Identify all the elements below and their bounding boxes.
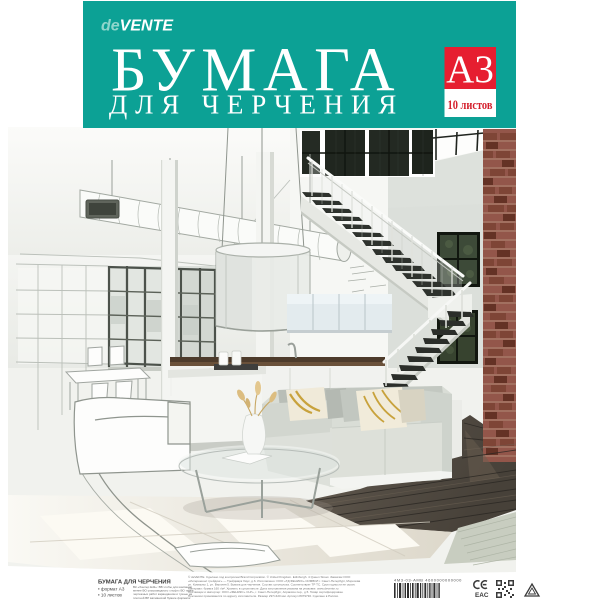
svg-text:• формат А3: • формат А3: [98, 587, 125, 592]
svg-text:плотной ВР ватманской бумаге ф: плотной ВР ватманской бумаге формата.: [133, 596, 191, 600]
svg-text:EAC: EAC: [475, 592, 489, 599]
svg-text:ДЛЯ ЧЕРЧЕНИЯ: ДЛЯ ЧЕРЧЕНИЯ: [109, 90, 404, 120]
svg-text:10 листов: 10 листов: [448, 97, 493, 112]
svg-text:• 10 листов: • 10 листов: [98, 593, 122, 598]
svg-text:deVENTE: deVENTE: [101, 18, 174, 35]
svg-text:Претензии принимаются по адрес: Претензии принимаются по адресу изготови…: [188, 594, 339, 598]
svg-text:А3: А3: [446, 48, 494, 91]
svg-text:4M3-03-AMB 4600000000000: 4M3-03-AMB 4600000000000: [394, 578, 462, 583]
